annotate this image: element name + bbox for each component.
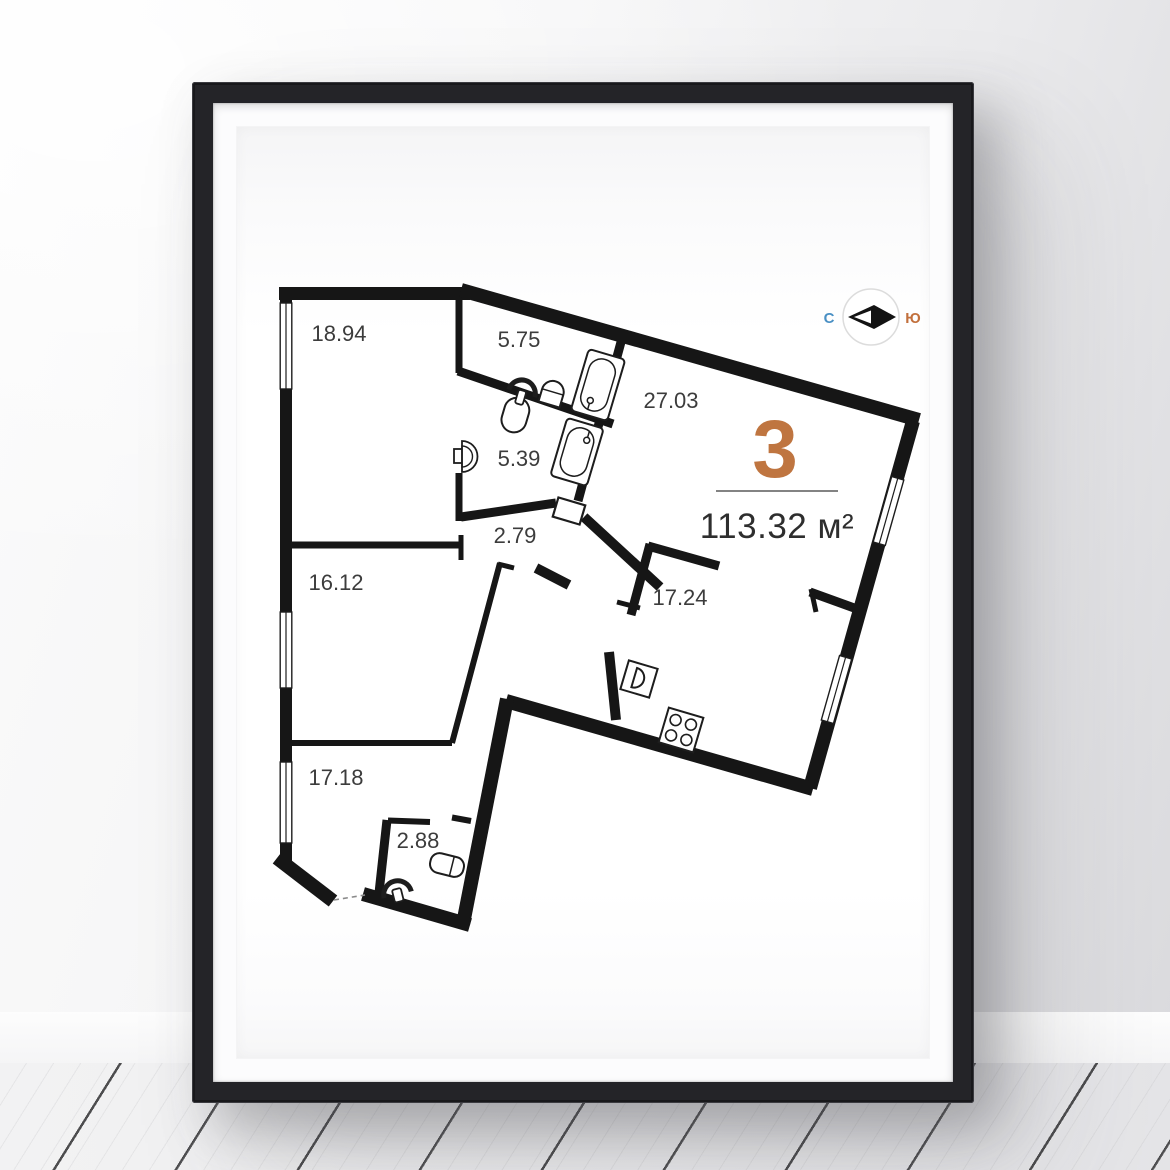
picture-frame: 18.94 5.75 27.03 5.39 2.79 16.12 17.24 1… bbox=[192, 82, 974, 1103]
bathtub-icon bbox=[571, 349, 626, 421]
window-icon bbox=[280, 303, 292, 389]
compass-south-label: Ю bbox=[905, 310, 920, 327]
sink-icon bbox=[454, 441, 477, 472]
room-area-label-5-75: 5.75 bbox=[498, 327, 541, 352]
unit-summary: 3 113.32 м² bbox=[700, 404, 854, 546]
floor-plan: 18.94 5.75 27.03 5.39 2.79 16.12 17.24 1… bbox=[237, 127, 929, 1058]
room-area-label-18-94: 18.94 bbox=[311, 321, 366, 346]
bathtub-icon bbox=[550, 418, 603, 486]
unit-number: 3 bbox=[752, 404, 798, 495]
room-area-label-27-03: 27.03 bbox=[643, 388, 698, 413]
total-area-label: 113.32 м² bbox=[700, 507, 854, 546]
entrance-opening bbox=[334, 895, 365, 900]
room-area-label-17-18: 17.18 bbox=[308, 765, 363, 790]
compass-north-label: С bbox=[824, 310, 835, 327]
compass-icon: С Ю bbox=[824, 289, 921, 345]
window-icon bbox=[821, 656, 851, 724]
sink-icon bbox=[428, 851, 466, 879]
window-icon bbox=[280, 762, 292, 843]
poster-paper: 18.94 5.75 27.03 5.39 2.79 16.12 17.24 1… bbox=[237, 127, 929, 1058]
room-area-label-2-79: 2.79 bbox=[494, 523, 537, 548]
frame-mat: 18.94 5.75 27.03 5.39 2.79 16.12 17.24 1… bbox=[213, 103, 953, 1082]
window-icon bbox=[873, 477, 904, 546]
sink-icon bbox=[620, 660, 657, 697]
room-photo-scene: 18.94 5.75 27.03 5.39 2.79 16.12 17.24 1… bbox=[0, 0, 1170, 1170]
window-icon bbox=[280, 612, 292, 688]
room-area-label-5-39: 5.39 bbox=[498, 446, 541, 471]
room-area-label-2-88: 2.88 bbox=[397, 828, 440, 853]
room-area-label-17-24: 17.24 bbox=[652, 585, 707, 610]
room-area-label-16-12: 16.12 bbox=[308, 570, 363, 595]
